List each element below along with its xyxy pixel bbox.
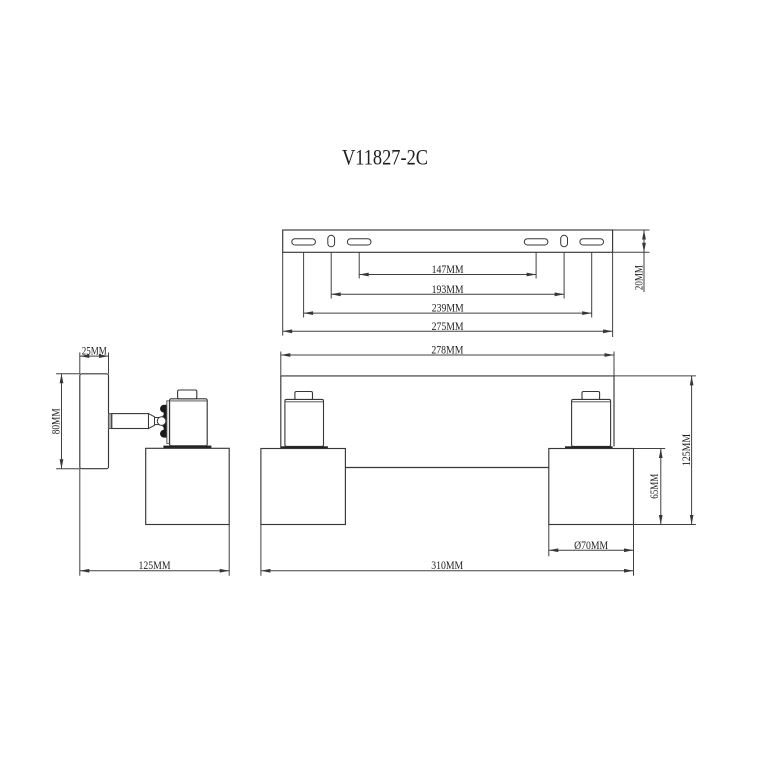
svg-text:125MM: 125MM: [139, 558, 171, 572]
svg-text:147MM: 147MM: [432, 262, 464, 276]
svg-text:310MM: 310MM: [431, 558, 463, 572]
svg-text:193MM: 193MM: [432, 282, 464, 296]
svg-text:25MM: 25MM: [82, 344, 107, 358]
svg-text:278MM: 278MM: [431, 343, 463, 357]
svg-text:80MM: 80MM: [48, 408, 62, 434]
svg-text:239MM: 239MM: [432, 301, 464, 315]
svg-text:Ø70MM: Ø70MM: [574, 538, 608, 552]
svg-text:20MM: 20MM: [631, 265, 645, 290]
svg-text:65MM: 65MM: [647, 474, 661, 499]
svg-text:275MM: 275MM: [432, 319, 464, 333]
svg-text:V11827-2C: V11827-2C: [342, 145, 428, 170]
svg-text:125MM: 125MM: [679, 434, 693, 466]
